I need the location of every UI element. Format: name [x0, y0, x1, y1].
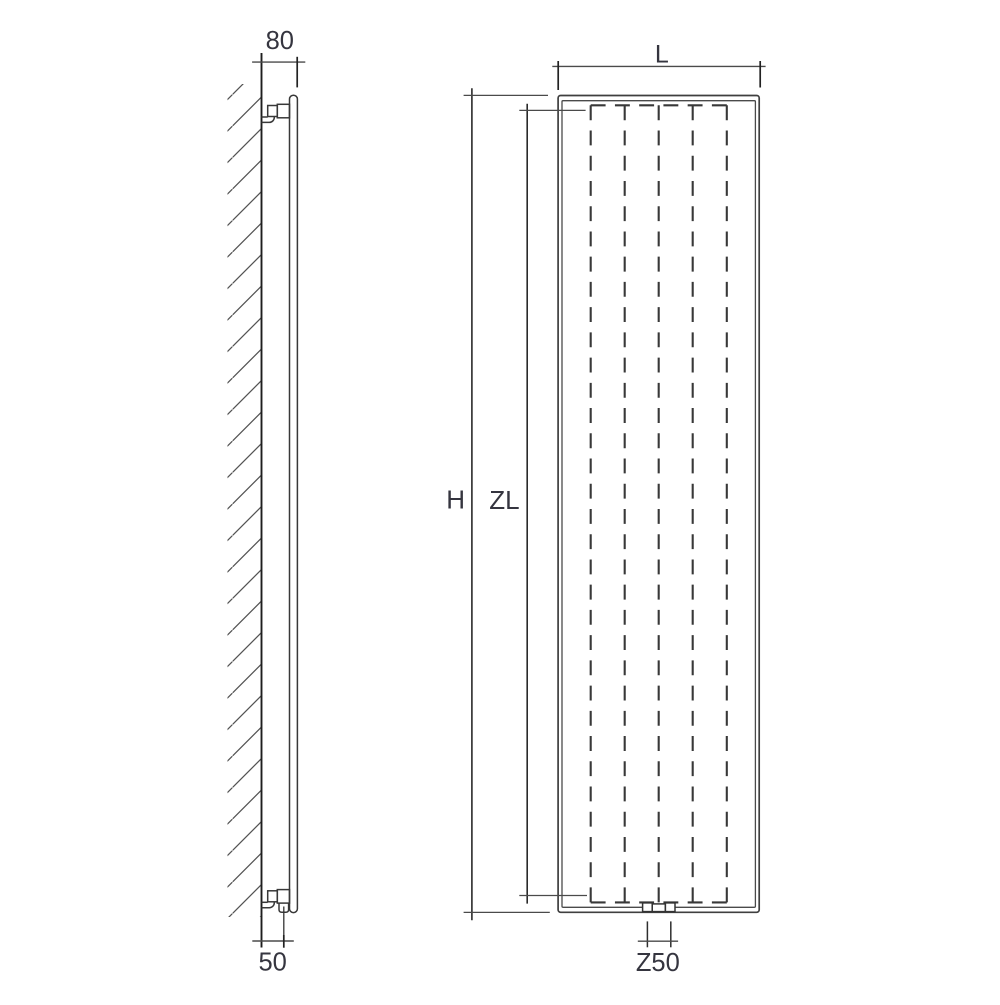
- svg-text:80: 80: [266, 27, 294, 55]
- svg-text:Z50: Z50: [636, 949, 680, 977]
- svg-text:50: 50: [259, 949, 287, 977]
- svg-text:H: H: [446, 484, 465, 514]
- svg-text:L: L: [655, 41, 669, 69]
- svg-text:ZL: ZL: [489, 485, 519, 515]
